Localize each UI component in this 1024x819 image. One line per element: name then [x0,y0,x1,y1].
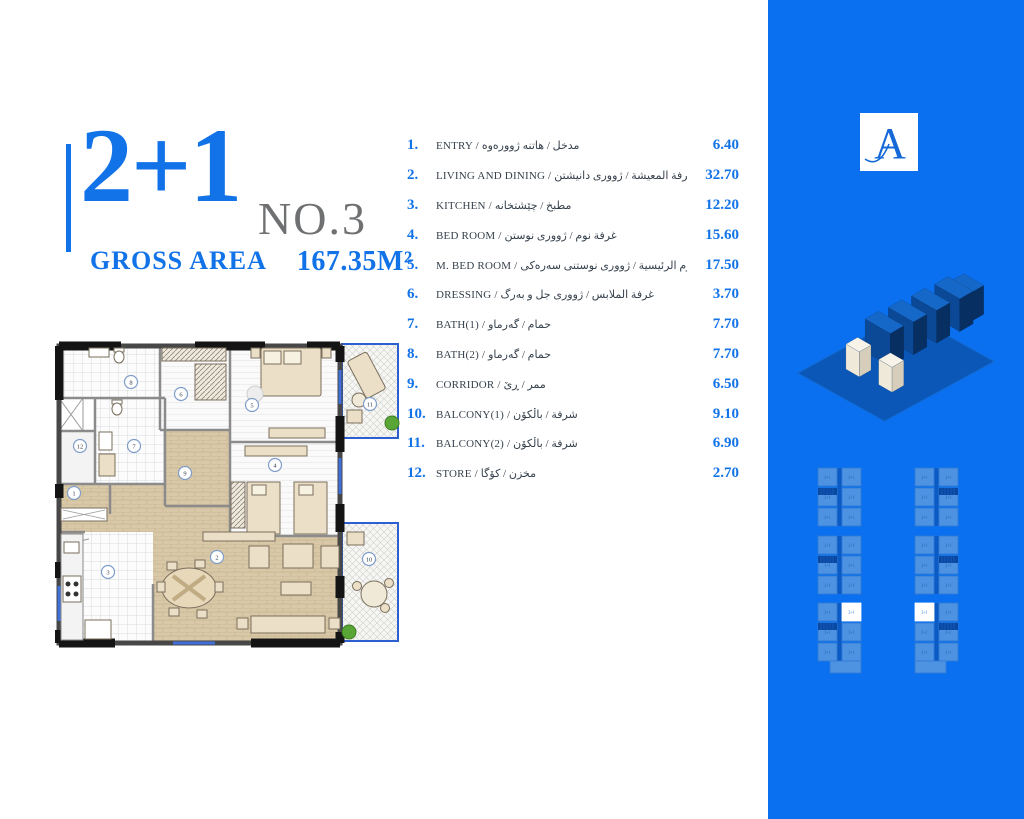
svg-text:2+1: 2+1 [921,495,927,500]
svg-text:3: 3 [106,569,109,576]
room-area: 3.70 [687,286,739,303]
room-marker: 9 [179,467,192,480]
room-label: BALCONY(2) / شرفة / باڵكۆن [436,437,687,450]
title-block: 2+1 NO.3 GROSS AREA 167.35M² [62,128,402,298]
svg-text:2+1: 2+1 [848,475,854,480]
room-number: 7. [407,316,436,333]
svg-text:12: 12 [77,443,84,450]
room-marker: 10 [363,553,376,566]
room-row: 2.LIVING AND DINING / غرفة المعيشة / ژوو… [407,161,739,191]
svg-text:2+1: 2+1 [945,563,951,568]
room-area: 6.50 [687,376,739,393]
room-number: 5. [407,257,436,274]
room-area: 9.10 [687,406,739,423]
title-accent-bar [66,144,71,252]
room-marker: 5 [246,399,259,412]
room-label: BALCONY(1) / شرفة / باڵكۆن [436,408,687,421]
room-number: 11. [407,435,436,452]
key-plan-block: 2+12+12+12+12+12+1 [915,468,958,526]
building-3d-render-icon [790,262,1002,432]
room-row: 12.STORE / مخزن / كۆگا2.70 [407,459,739,489]
room-area: 32.70 [687,167,739,184]
unit-type-title: 2+1 [80,102,240,229]
svg-text:1: 1 [72,490,75,497]
room-number: 12. [407,465,436,482]
svg-text:2: 2 [215,554,218,561]
room-row: 10.BALCONY(1) / شرفة / باڵكۆن9.10 [407,399,739,429]
svg-text:2+1: 2+1 [824,630,830,635]
room-row: 4.BED ROOM / غرفة نوم / ژوورى نوستن15.60 [407,220,739,250]
svg-text:2+1: 2+1 [945,650,951,655]
room-area: 2.70 [687,465,739,482]
room-label: CORRIDOR / ممر / ڕێ [436,378,687,391]
unit-number: NO.3 [258,192,367,245]
room-row: 6.DRESSING / غرفة الملابس / ژوورى جل و ب… [407,280,739,310]
room-label: KITCHEN / مطبخ / چێشتخانە [436,199,687,212]
room-number: 9. [407,376,436,393]
svg-text:2+1: 2+1 [824,495,830,500]
room-marker: 1 [68,487,81,500]
room-number: 3. [407,197,436,214]
room-area: 15.60 [687,227,739,244]
room-row: 1.ENTRY / مدخل / هاتنە ژوورەوە6.40 [407,131,739,161]
room-number: 10. [407,406,436,423]
svg-text:2+1: 2+1 [921,583,927,588]
room-area: 12.20 [687,197,739,214]
svg-text:10: 10 [366,556,373,563]
svg-text:2+1: 2+1 [921,610,927,615]
site-key-plan: 2+12+12+12+12+12+12+12+12+12+12+12+12+12… [813,458,1003,683]
key-plan-block: 2+12+12+12+12+12+1 [818,603,861,673]
key-plan-block: 2+12+12+12+12+12+1 [818,536,861,594]
room-row: 8.BATH(2) / حمام / گەرماو7.70 [407,340,739,370]
svg-text:2+1: 2+1 [921,650,927,655]
room-row: 5.M. BED ROOM / غرفة نوم الرئيسية / ژوور… [407,250,739,280]
svg-text:2+1: 2+1 [824,583,830,588]
svg-text:9: 9 [183,470,186,477]
room-number: 6. [407,286,436,303]
room-row: 7.BATH(1) / حمام / گەرماو7.70 [407,310,739,340]
brand-letter: A [874,119,906,168]
room-row: 9.CORRIDOR / ممر / ڕێ6.50 [407,369,739,399]
svg-text:2+1: 2+1 [848,610,854,615]
svg-text:2+1: 2+1 [921,475,927,480]
gross-area-label: GROSS AREA [90,246,267,278]
room-marker: 7 [128,440,141,453]
room-row: 11.BALCONY(2) / شرفة / باڵكۆن6.90 [407,429,739,459]
room-marker: 3 [102,566,115,579]
svg-text:2+1: 2+1 [824,475,830,480]
room-label: BED ROOM / غرفة نوم / ژوورى نوستن [436,229,687,242]
brand-logo: A [860,113,918,171]
room-marker: 12 [74,440,87,453]
room-marker: 11 [364,398,377,411]
corridor-floor [165,430,230,506]
svg-text:5: 5 [250,402,253,409]
gross-area-line: GROSS AREA 167.35M² [90,246,420,278]
svg-text:2+1: 2+1 [848,583,854,588]
gross-area-value: 167.35M² [297,246,413,278]
room-row: 3.KITCHEN / مطبخ / چێشتخانە12.20 [407,191,739,221]
key-plan-block: 2+12+12+12+12+12+1 [915,536,958,594]
svg-text:2+1: 2+1 [921,543,927,548]
room-marker: 8 [125,376,138,389]
floor-plan-drawing: 123456789101112 [55,336,405,648]
svg-text:2+1: 2+1 [945,610,951,615]
svg-text:2+1: 2+1 [945,495,951,500]
room-label: M. BED ROOM / غرفة نوم الرئيسية / ژوورى … [436,259,687,272]
room-area: 17.50 [687,257,739,274]
room-area: 7.70 [687,346,739,363]
room-area: 7.70 [687,316,739,333]
svg-text:8: 8 [129,379,132,386]
svg-text:2+1: 2+1 [945,515,951,520]
room-area: 6.40 [687,137,739,154]
svg-text:2+1: 2+1 [824,543,830,548]
svg-text:2+1: 2+1 [848,515,854,520]
svg-text:2+1: 2+1 [945,475,951,480]
brochure-page: 2+1 NO.3 GROSS AREA 167.35M² 1.ENTRY / م… [0,0,1024,819]
svg-text:2+1: 2+1 [824,563,830,568]
room-label: BATH(2) / حمام / گەرماو [436,348,687,361]
sidebar-panel: A 2+12+12+12+12+12+12+12+12+12+12+12+12+… [768,0,1024,819]
svg-text:2+1: 2+1 [824,515,830,520]
svg-text:2+1: 2+1 [945,583,951,588]
svg-text:2+1: 2+1 [921,563,927,568]
room-area: 6.90 [687,435,739,452]
key-plan-block: 2+12+12+12+12+12+1 [818,468,861,526]
store-floor [59,431,95,484]
room-number: 8. [407,346,436,363]
svg-text:11: 11 [367,401,373,408]
svg-text:2+1: 2+1 [848,563,854,568]
svg-text:2+1: 2+1 [921,515,927,520]
room-label: LIVING AND DINING / غرفة المعيشة / ژوورى… [436,169,687,182]
room-number: 2. [407,167,436,184]
svg-text:2+1: 2+1 [824,650,830,655]
room-list: 1.ENTRY / مدخل / هاتنە ژوورەوە6.40 2.LIV… [407,131,739,489]
room-label: DRESSING / غرفة الملابس / ژوورى جل و بەر… [436,288,687,301]
room-label: ENTRY / مدخل / هاتنە ژوورەوە [436,139,687,152]
room-marker: 4 [269,459,282,472]
room-marker: 2 [211,551,224,564]
room-number: 4. [407,227,436,244]
svg-text:2+1: 2+1 [921,630,927,635]
svg-text:2+1: 2+1 [945,543,951,548]
brand-letter-icon: A [860,113,918,171]
room-marker: 6 [175,388,188,401]
key-plan-block: 2+12+12+12+12+12+1 [915,603,958,673]
svg-text:2+1: 2+1 [848,650,854,655]
room-label: BATH(1) / حمام / گەرماو [436,318,687,331]
room-label: STORE / مخزن / كۆگا [436,467,687,480]
svg-text:2+1: 2+1 [945,630,951,635]
svg-text:2+1: 2+1 [824,610,830,615]
svg-text:2+1: 2+1 [848,630,854,635]
svg-text:2+1: 2+1 [848,495,854,500]
room-number: 1. [407,137,436,154]
svg-text:2+1: 2+1 [848,543,854,548]
